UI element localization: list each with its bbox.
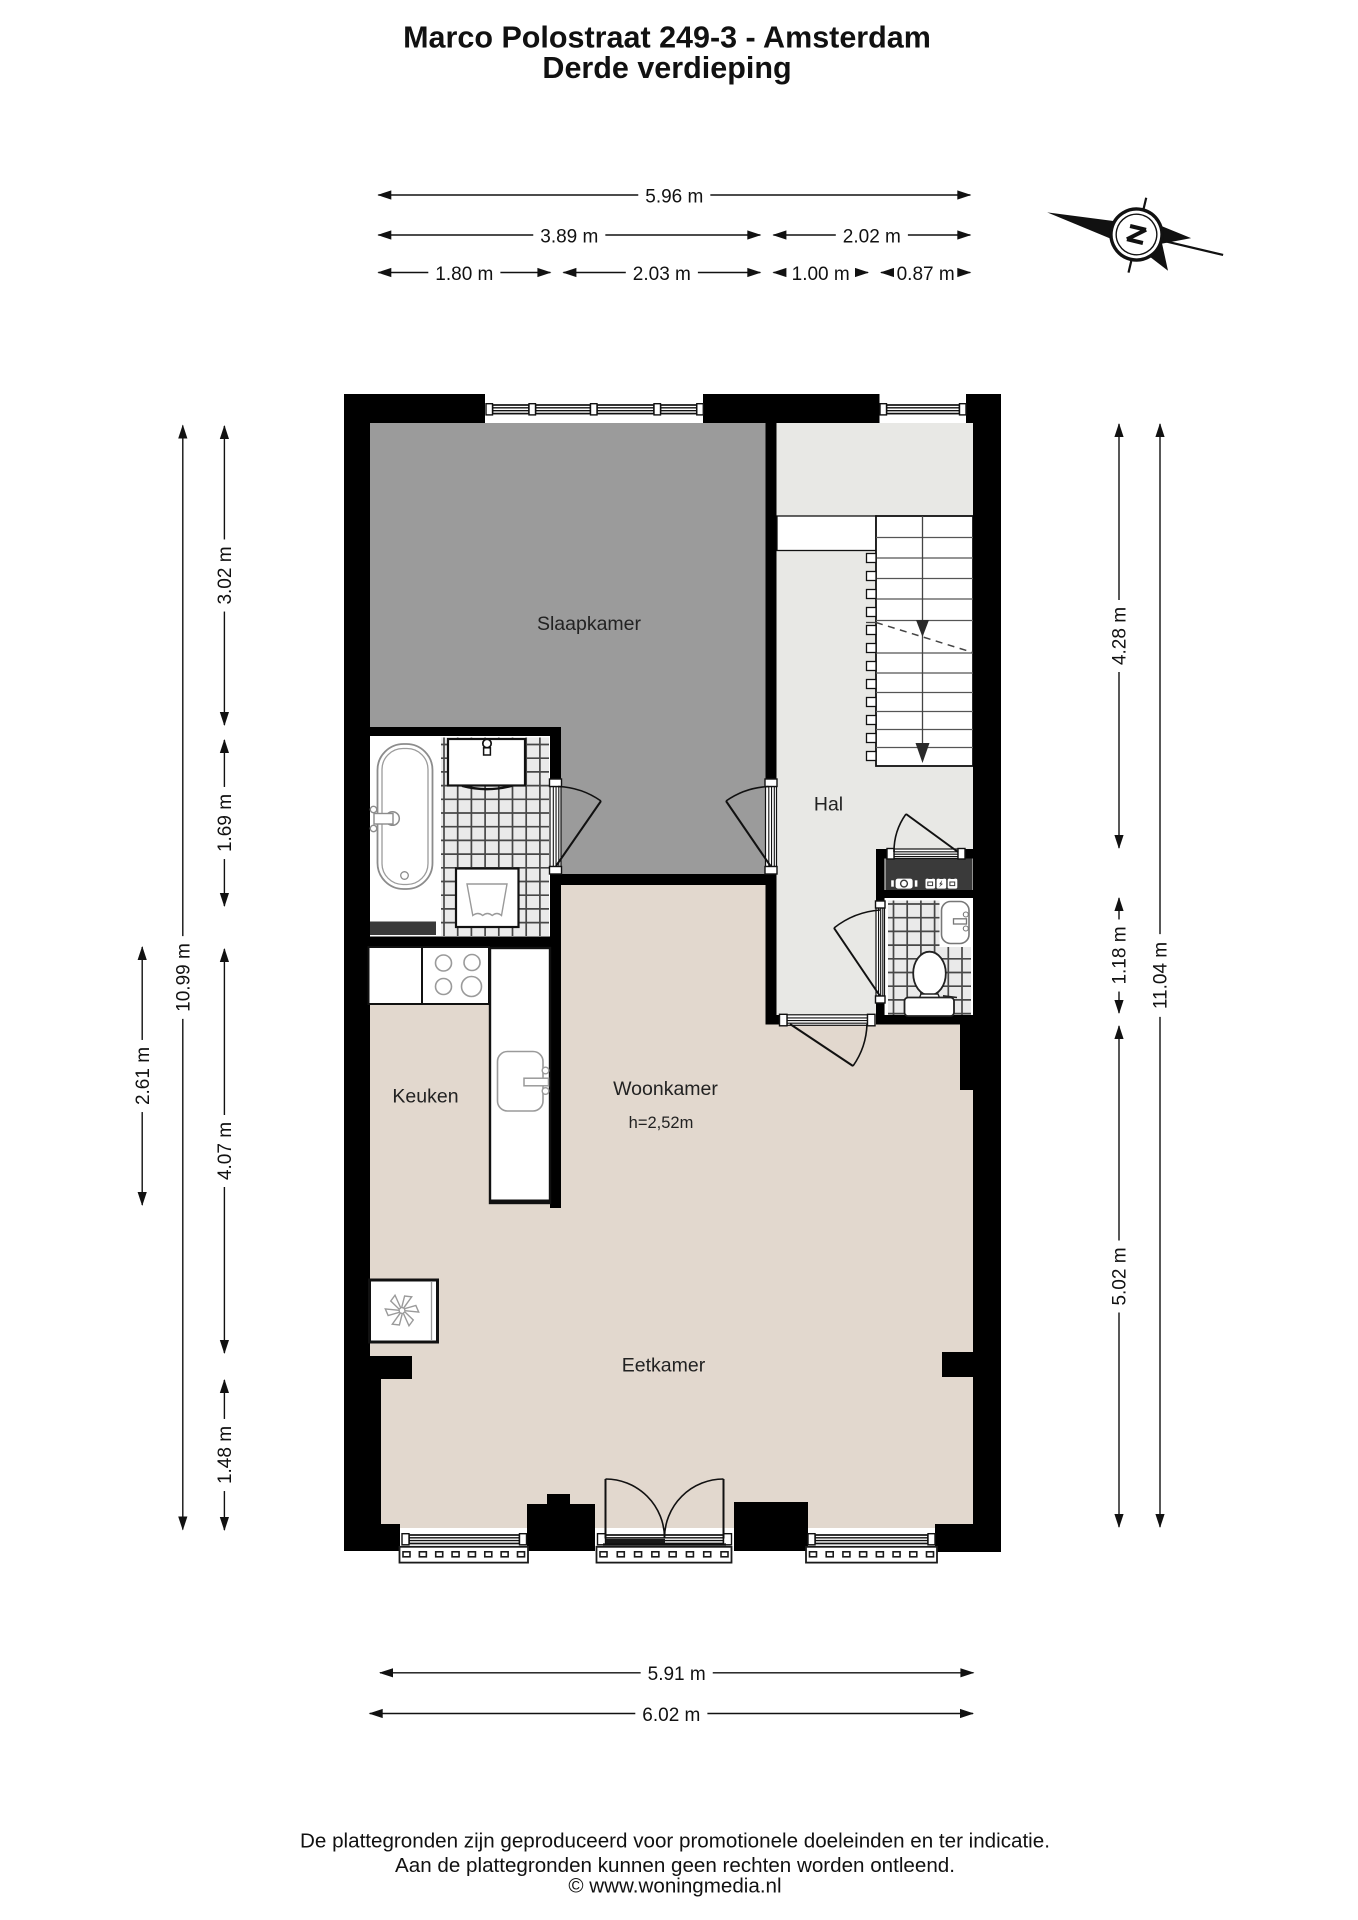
svg-text:Hal: Hal [814,794,843,816]
svg-text:Marco Polostraat 249-3 - Amste: Marco Polostraat 249-3 - Amsterdam [403,21,931,55]
svg-text:4.07 m: 4.07 m [215,1122,236,1180]
svg-text:1.00 m: 1.00 m [792,264,850,285]
svg-text:h=2,52m: h=2,52m [629,1114,694,1132]
svg-text:De plattegronden zijn geproduc: De plattegronden zijn geproduceerd voor … [300,1830,1050,1853]
svg-text:11.04 m: 11.04 m [1151,942,1172,1009]
svg-text:1.69 m: 1.69 m [215,794,236,852]
svg-text:1.80 m: 1.80 m [435,264,493,285]
svg-text:3.02 m: 3.02 m [215,546,236,604]
svg-text:1.18 m: 1.18 m [1110,926,1131,984]
svg-text:1.48 m: 1.48 m [215,1426,236,1484]
svg-text:Eetkamer: Eetkamer [622,1355,706,1377]
svg-text:Slaapkamer: Slaapkamer [537,613,642,635]
svg-text:10.99 m: 10.99 m [174,943,195,1012]
svg-text:© www.woningmedia.nl: © www.woningmedia.nl [568,1875,781,1898]
svg-text:5.96 m: 5.96 m [645,186,703,207]
svg-text:4.28 m: 4.28 m [1110,607,1131,665]
svg-text:Aan de plattegronden kunnen ge: Aan de plattegronden kunnen geen rechten… [395,1854,955,1877]
svg-text:0.87 m: 0.87 m [897,264,955,285]
svg-text:Woonkamer: Woonkamer [613,1078,718,1100]
svg-text:Keuken: Keuken [392,1086,458,1108]
svg-text:5.02 m: 5.02 m [1110,1247,1131,1305]
svg-text:6.02 m: 6.02 m [642,1705,700,1726]
svg-text:2.02 m: 2.02 m [843,226,901,247]
svg-text:5.91 m: 5.91 m [648,1664,706,1685]
svg-text:Derde verdieping: Derde verdieping [542,51,791,85]
svg-text:2.03 m: 2.03 m [633,264,691,285]
svg-text:3.89 m: 3.89 m [540,226,598,247]
svg-text:2.61 m: 2.61 m [133,1047,154,1105]
